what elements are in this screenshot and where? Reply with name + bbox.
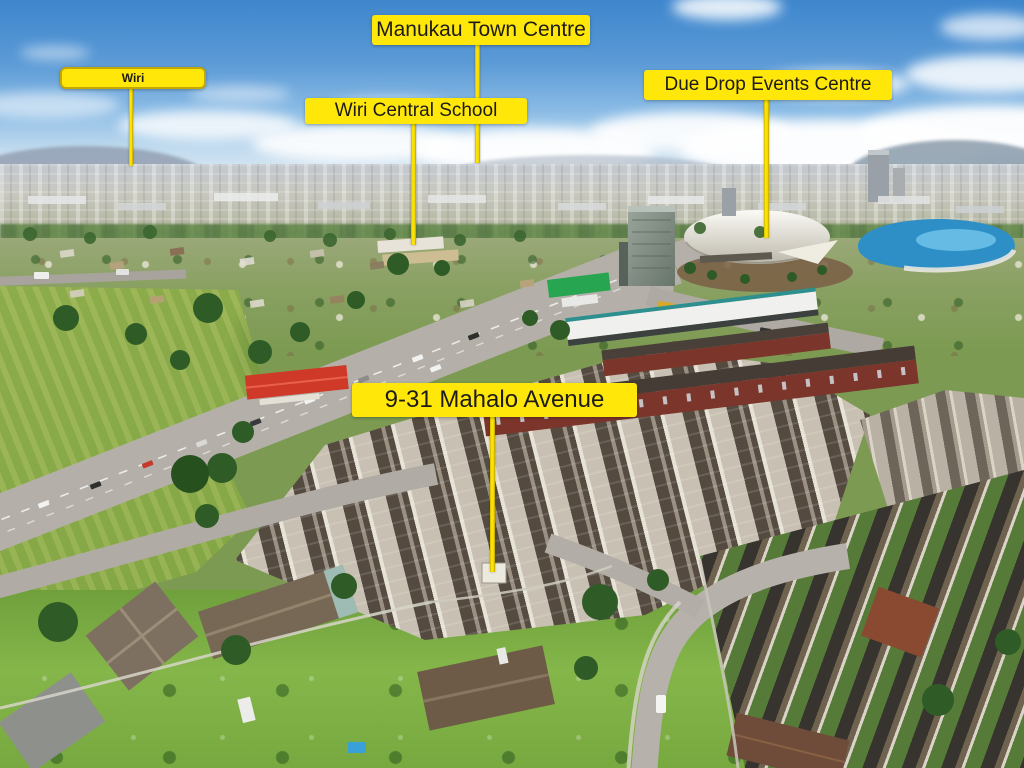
pointer-line-property [490, 416, 495, 572]
suburban-houses [0, 565, 939, 768]
pointer-line-wiri-central-school [411, 123, 416, 245]
pointer-line-wiri [129, 88, 133, 166]
callout-text: Manukau Town Centre [376, 18, 586, 42]
callout-wiri-central-school: Wiri Central School [305, 98, 527, 124]
callout-text: 9-31 Mahalo Avenue [385, 386, 605, 414]
callout-text: Due Drop Events Centre [665, 74, 872, 96]
callout-text: Wiri Central School [335, 100, 498, 122]
warehouses [28, 193, 1004, 213]
callout-manukau-town-centre: Manukau Town Centre [372, 15, 590, 45]
apartment-tower [619, 206, 675, 286]
pointer-line-due-drop-events-centre [764, 99, 769, 238]
aerial-photo: Manukau Town Centre Wiri Wiri Central Sc… [0, 0, 1024, 768]
callout-wiri: Wiri [60, 67, 206, 89]
callout-property-address: 9-31 Mahalo Avenue [352, 383, 637, 417]
callout-due-drop-events-centre: Due Drop Events Centre [644, 70, 892, 100]
wave-pool [858, 219, 1015, 270]
callout-text: Wiri [122, 71, 145, 85]
distant-highrise [722, 150, 905, 216]
